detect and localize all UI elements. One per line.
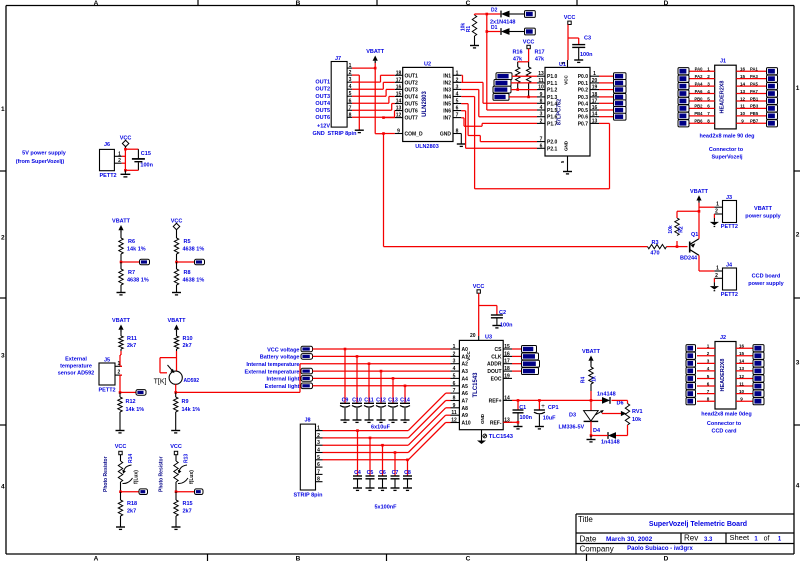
svg-text:2: 2 xyxy=(707,351,710,356)
svg-text:1: 1 xyxy=(716,266,719,272)
svg-text:3: 3 xyxy=(707,81,710,86)
svg-text:OUT3: OUT3 xyxy=(315,94,330,100)
svg-text:12: 12 xyxy=(451,418,457,424)
svg-text:470: 470 xyxy=(650,250,659,256)
svg-text:3: 3 xyxy=(1,352,5,359)
svg-text:PA1: PA1 xyxy=(750,67,759,72)
svg-text:2: 2 xyxy=(1,234,5,241)
svg-text:C3: C3 xyxy=(584,36,591,42)
svg-text:7: 7 xyxy=(317,469,320,475)
svg-text:B: B xyxy=(296,556,301,561)
svg-text:f(Lux): f(Lux) xyxy=(189,470,195,484)
svg-text:R7: R7 xyxy=(128,270,135,276)
svg-text:TLC1543: TLC1543 xyxy=(489,434,514,440)
svg-text:100n: 100n xyxy=(500,323,513,329)
svg-text:1: 1 xyxy=(349,63,352,69)
svg-text:A5: A5 xyxy=(462,384,469,390)
svg-text:1: 1 xyxy=(593,71,596,77)
svg-text:6: 6 xyxy=(349,98,352,104)
svg-text:5: 5 xyxy=(453,373,456,379)
svg-text:OUT2: OUT2 xyxy=(405,80,419,86)
svg-text:12: 12 xyxy=(740,96,746,101)
svg-text:3: 3 xyxy=(317,440,320,446)
svg-text:C11: C11 xyxy=(364,397,373,403)
svg-text:A7: A7 xyxy=(462,399,469,405)
svg-text:4: 4 xyxy=(707,89,710,94)
svg-text:8: 8 xyxy=(707,396,710,401)
svg-text:External light: External light xyxy=(265,384,300,390)
svg-text:11: 11 xyxy=(740,104,745,109)
svg-text:A1: A1 xyxy=(462,354,469,360)
svg-text:10k: 10k xyxy=(668,225,674,234)
svg-text:8: 8 xyxy=(453,396,456,402)
svg-text:4: 4 xyxy=(1,483,5,490)
svg-text:2: 2 xyxy=(540,118,543,124)
svg-text:head2x8 male 90 deg: head2x8 male 90 deg xyxy=(699,134,754,140)
svg-text:March 30, 2002: March 30, 2002 xyxy=(606,536,653,543)
svg-text:A3: A3 xyxy=(462,369,469,375)
svg-text:5: 5 xyxy=(707,374,710,379)
svg-text:4: 4 xyxy=(349,84,352,90)
svg-text:J8: J8 xyxy=(304,418,310,424)
svg-text:A4: A4 xyxy=(462,376,469,382)
svg-text:18: 18 xyxy=(396,70,402,76)
svg-text:1k: 1k xyxy=(592,376,598,382)
svg-text:14k 1%: 14k 1% xyxy=(127,247,146,253)
svg-text:5: 5 xyxy=(707,96,710,101)
svg-text:J2: J2 xyxy=(720,335,726,341)
svg-text:6: 6 xyxy=(453,381,456,387)
svg-text:PA3: PA3 xyxy=(750,74,759,79)
svg-text:5x100nF: 5x100nF xyxy=(374,505,397,511)
svg-text:D4: D4 xyxy=(593,428,601,434)
svg-text:A6: A6 xyxy=(462,391,469,397)
svg-text:VBATT: VBATT xyxy=(112,318,131,324)
svg-text:20: 20 xyxy=(592,78,598,84)
svg-text:D: D xyxy=(664,0,669,7)
svg-text:6: 6 xyxy=(707,104,710,109)
svg-text:(from SuperVozelj): (from SuperVozelj) xyxy=(16,159,65,165)
svg-text:16: 16 xyxy=(739,344,745,349)
svg-text:4638 1%: 4638 1% xyxy=(183,247,205,253)
svg-text:VCC: VCC xyxy=(564,75,569,85)
svg-text:P0.7: P0.7 xyxy=(578,121,589,127)
svg-text:PETT2: PETT2 xyxy=(721,292,738,298)
svg-text:P1.0: P1.0 xyxy=(547,74,558,80)
svg-text:J3: J3 xyxy=(726,195,732,201)
svg-text:2: 2 xyxy=(715,273,718,279)
svg-text:Photo Resistor: Photo Resistor xyxy=(159,456,165,492)
svg-text:P1.6: P1.6 xyxy=(547,115,558,121)
svg-text:2: 2 xyxy=(707,74,710,79)
svg-text:87LPC762: 87LPC762 xyxy=(557,99,563,125)
svg-text:sensor AD592: sensor AD592 xyxy=(58,371,94,377)
svg-text:J1: J1 xyxy=(720,59,726,65)
svg-text:CLK: CLK xyxy=(491,354,502,360)
svg-text:14: 14 xyxy=(592,112,598,118)
svg-text:5: 5 xyxy=(317,455,320,461)
svg-text:15: 15 xyxy=(396,91,402,97)
svg-text:100n: 100n xyxy=(580,52,593,58)
svg-text:PETT2: PETT2 xyxy=(100,173,117,179)
svg-text:SuperVozelj: SuperVozelj xyxy=(711,155,743,161)
svg-text:5: 5 xyxy=(349,91,352,97)
svg-text:1: 1 xyxy=(716,202,719,208)
svg-text:A10: A10 xyxy=(462,421,471,427)
svg-text:VCC: VCC xyxy=(473,284,485,290)
svg-text:9: 9 xyxy=(397,129,400,135)
svg-text:11: 11 xyxy=(451,410,457,416)
svg-text:9: 9 xyxy=(740,396,743,401)
svg-text:IN7: IN7 xyxy=(443,116,451,122)
svg-text:CCD card: CCD card xyxy=(711,429,736,435)
svg-text:SuperVozelj Telemetric Board: SuperVozelj Telemetric Board xyxy=(649,521,747,528)
svg-text:4: 4 xyxy=(707,366,710,371)
svg-text:P0.2: P0.2 xyxy=(578,88,589,94)
svg-text:DOUT: DOUT xyxy=(487,369,501,375)
svg-text:15: 15 xyxy=(739,351,745,356)
svg-text:3: 3 xyxy=(453,359,456,365)
svg-text:A0: A0 xyxy=(462,347,469,353)
svg-text:8: 8 xyxy=(349,112,352,118)
svg-text:9: 9 xyxy=(453,403,456,409)
svg-text:R12: R12 xyxy=(126,399,136,405)
svg-text:Connector to: Connector to xyxy=(707,421,742,427)
svg-text:10: 10 xyxy=(740,111,746,116)
svg-text:R11: R11 xyxy=(127,336,137,342)
svg-text:VCC: VCC xyxy=(115,444,127,450)
svg-text:A: A xyxy=(94,0,99,7)
svg-text:6: 6 xyxy=(707,381,710,386)
svg-text:6: 6 xyxy=(456,106,459,112)
svg-text:Internal light: Internal light xyxy=(267,377,300,383)
svg-text:OUT2: OUT2 xyxy=(315,87,330,93)
svg-text:C8: C8 xyxy=(404,470,411,476)
svg-text:1: 1 xyxy=(453,344,456,350)
svg-text:Title: Title xyxy=(578,515,593,524)
svg-text:PA0: PA0 xyxy=(695,67,704,72)
svg-text:2: 2 xyxy=(796,231,800,238)
svg-text:15: 15 xyxy=(740,74,746,79)
svg-text:OUT5: OUT5 xyxy=(315,108,330,114)
svg-text:+: + xyxy=(541,403,545,410)
svg-text:PB0: PB0 xyxy=(694,96,703,101)
svg-text:A9: A9 xyxy=(462,413,469,419)
svg-text:STRIP 8pin: STRIP 8pin xyxy=(294,493,324,499)
svg-text:GND: GND xyxy=(313,131,325,137)
svg-text:5V power supply: 5V power supply xyxy=(22,151,67,157)
svg-text:R18: R18 xyxy=(127,501,137,507)
svg-text:C5: C5 xyxy=(367,470,374,476)
svg-text:IN2: IN2 xyxy=(443,80,451,86)
svg-text:6: 6 xyxy=(317,462,320,468)
svg-text:14: 14 xyxy=(740,81,746,86)
svg-text:R2: R2 xyxy=(679,226,685,233)
svg-text:J6: J6 xyxy=(104,142,110,148)
svg-text:Company: Company xyxy=(580,545,614,554)
svg-text:OUT5: OUT5 xyxy=(405,102,419,108)
svg-text:P0.3: P0.3 xyxy=(578,95,589,101)
svg-text:7: 7 xyxy=(707,111,710,116)
svg-text:IN3: IN3 xyxy=(443,87,451,93)
svg-text:4: 4 xyxy=(540,105,543,111)
svg-text:9: 9 xyxy=(741,119,744,124)
svg-text:18: 18 xyxy=(504,366,510,372)
svg-text:7: 7 xyxy=(456,113,459,119)
svg-text:3.3: 3.3 xyxy=(704,537,713,543)
svg-text:R3: R3 xyxy=(651,240,658,246)
svg-text:C13: C13 xyxy=(388,397,398,403)
svg-text:R5: R5 xyxy=(184,239,191,245)
svg-text:R13: R13 xyxy=(184,454,190,463)
svg-text:PA7: PA7 xyxy=(750,89,759,94)
svg-text:OUT1: OUT1 xyxy=(405,73,419,79)
svg-text:ULN2803: ULN2803 xyxy=(422,91,428,117)
svg-text:7: 7 xyxy=(453,388,456,394)
svg-text:Date: Date xyxy=(580,535,597,544)
svg-text:OUT3: OUT3 xyxy=(405,87,419,93)
svg-text:2k7: 2k7 xyxy=(183,509,192,515)
svg-text:VCC: VCC xyxy=(170,444,182,450)
svg-text:R10: R10 xyxy=(183,336,193,342)
svg-text:3: 3 xyxy=(456,84,459,90)
svg-text:PA6: PA6 xyxy=(695,89,704,94)
svg-text:R1: R1 xyxy=(466,26,472,33)
svg-text:P0.1: P0.1 xyxy=(578,81,589,87)
svg-text:P2.1: P2.1 xyxy=(547,146,558,152)
svg-text:7: 7 xyxy=(349,105,352,111)
svg-text:8: 8 xyxy=(707,119,710,124)
svg-text:1: 1 xyxy=(707,67,710,72)
svg-text:16: 16 xyxy=(592,105,598,111)
svg-text:C2: C2 xyxy=(499,310,506,316)
svg-text:IN6: IN6 xyxy=(443,109,451,115)
svg-text:14k 1%: 14k 1% xyxy=(126,407,145,413)
svg-text:47k: 47k xyxy=(513,57,523,63)
svg-text:Paolo Subiaco - iw3grx: Paolo Subiaco - iw3grx xyxy=(627,546,693,552)
svg-text:7: 7 xyxy=(540,137,543,143)
svg-text:C4: C4 xyxy=(354,470,361,476)
svg-text:P1.4: P1.4 xyxy=(547,101,558,107)
svg-text:13: 13 xyxy=(396,106,402,112)
svg-text:AD592: AD592 xyxy=(184,378,200,384)
svg-text:OUT4: OUT4 xyxy=(405,94,419,100)
svg-text:9: 9 xyxy=(540,92,543,98)
svg-text:14: 14 xyxy=(504,395,510,401)
svg-text:19: 19 xyxy=(592,85,598,91)
svg-text:Connector to: Connector to xyxy=(709,147,744,153)
svg-text:U3: U3 xyxy=(485,335,492,341)
svg-text:C12: C12 xyxy=(376,397,386,403)
svg-text:R15: R15 xyxy=(183,501,193,507)
svg-text:20: 20 xyxy=(470,333,476,339)
svg-text:VBATT: VBATT xyxy=(754,206,773,212)
svg-text:ULN2803: ULN2803 xyxy=(415,144,439,150)
svg-text:PB6: PB6 xyxy=(694,119,703,124)
svg-text:J4: J4 xyxy=(726,263,733,269)
svg-text:13: 13 xyxy=(740,89,746,94)
svg-text:D6: D6 xyxy=(617,401,624,407)
svg-text:C9: C9 xyxy=(342,397,349,403)
svg-text:A2: A2 xyxy=(462,362,469,368)
svg-text:P0.0: P0.0 xyxy=(578,74,589,80)
svg-text:VBATT: VBATT xyxy=(366,49,385,55)
svg-text:PB5: PB5 xyxy=(750,111,759,116)
svg-text:CP1: CP1 xyxy=(548,405,559,411)
svg-text:8: 8 xyxy=(540,98,543,104)
svg-text:14k 1%: 14k 1% xyxy=(182,407,201,413)
svg-text:1: 1 xyxy=(317,426,320,432)
svg-text:COM_D: COM_D xyxy=(405,132,423,138)
svg-text:PA5: PA5 xyxy=(750,81,759,86)
svg-text:C14: C14 xyxy=(400,397,410,403)
svg-text:PB7: PB7 xyxy=(750,119,759,124)
svg-text:2: 2 xyxy=(317,433,320,439)
svg-text:14: 14 xyxy=(739,359,745,364)
svg-text:VBATT: VBATT xyxy=(690,189,709,195)
svg-text:1n4148: 1n4148 xyxy=(601,440,620,446)
svg-text:4638 1%: 4638 1% xyxy=(127,278,149,284)
svg-text:16: 16 xyxy=(396,84,402,90)
svg-text:REF-: REF- xyxy=(490,420,502,426)
svg-text:3: 3 xyxy=(540,112,543,118)
svg-text:C: C xyxy=(466,0,471,7)
svg-text:3: 3 xyxy=(707,359,710,364)
svg-text:C10: C10 xyxy=(352,397,362,403)
svg-text:power supply: power supply xyxy=(745,214,781,220)
svg-text:10: 10 xyxy=(739,389,745,394)
svg-text:16: 16 xyxy=(740,67,746,72)
svg-text:VBATT: VBATT xyxy=(112,219,131,225)
svg-text:ADDR: ADDR xyxy=(487,362,502,368)
svg-text:2: 2 xyxy=(715,209,718,215)
svg-text:18: 18 xyxy=(592,92,598,98)
svg-text:1: 1 xyxy=(1,106,5,113)
svg-text:R6: R6 xyxy=(128,239,135,245)
svg-text:2: 2 xyxy=(453,351,456,357)
svg-text:1: 1 xyxy=(118,151,121,157)
svg-text:1: 1 xyxy=(796,85,800,92)
svg-text:EOC: EOC xyxy=(491,376,502,382)
svg-text:2: 2 xyxy=(118,158,121,164)
svg-text:1: 1 xyxy=(707,344,710,349)
svg-text:P1.5: P1.5 xyxy=(547,108,558,114)
svg-text:R14: R14 xyxy=(128,454,134,463)
svg-text:2: 2 xyxy=(349,70,352,76)
svg-text:PETT2: PETT2 xyxy=(721,224,738,230)
svg-text:R17: R17 xyxy=(534,50,544,56)
svg-text:OUT6: OUT6 xyxy=(405,109,419,115)
svg-text:GND: GND xyxy=(564,140,569,151)
svg-text:VCC voltage: VCC voltage xyxy=(267,347,299,353)
svg-text:PA4: PA4 xyxy=(695,81,704,86)
svg-text:P0.5: P0.5 xyxy=(578,108,589,114)
svg-text:R8: R8 xyxy=(184,270,191,276)
svg-text:GND: GND xyxy=(480,413,485,424)
svg-text:47k: 47k xyxy=(535,57,545,63)
svg-text:GND: GND xyxy=(440,132,452,138)
svg-text:OUT4: OUT4 xyxy=(315,101,331,107)
svg-text:External temperature: External temperature xyxy=(244,369,299,375)
svg-text:OUT1: OUT1 xyxy=(315,80,330,86)
svg-text:PA2: PA2 xyxy=(695,74,704,79)
svg-text:P0.6: P0.6 xyxy=(578,115,589,121)
svg-text:6: 6 xyxy=(540,143,543,149)
svg-text:7: 7 xyxy=(707,389,710,394)
svg-text:1n4148: 1n4148 xyxy=(597,392,616,398)
svg-text:D2: D2 xyxy=(491,8,498,14)
svg-text:4: 4 xyxy=(456,91,459,97)
svg-text:VCC: VCC xyxy=(564,15,576,21)
svg-text:BD244: BD244 xyxy=(680,256,698,262)
svg-text:8: 8 xyxy=(456,129,459,135)
svg-text:U2: U2 xyxy=(424,62,431,68)
svg-text:HEADER2X8: HEADER2X8 xyxy=(720,358,726,391)
svg-text:P1.2: P1.2 xyxy=(547,88,558,94)
svg-text:VCC: VCC xyxy=(523,40,535,46)
svg-text:P1.3: P1.3 xyxy=(547,95,558,101)
svg-text:15: 15 xyxy=(504,344,510,350)
svg-text:J7: J7 xyxy=(335,56,341,62)
svg-text:4: 4 xyxy=(453,366,456,372)
svg-text:2k7: 2k7 xyxy=(127,343,136,349)
svg-text:R4: R4 xyxy=(581,377,587,384)
svg-text:6x10uF: 6x10uF xyxy=(371,425,391,431)
svg-text:Photo Resistor: Photo Resistor xyxy=(103,456,109,492)
svg-text:J5: J5 xyxy=(104,358,110,364)
svg-text:14: 14 xyxy=(396,99,402,105)
svg-text:C1: C1 xyxy=(519,405,526,411)
svg-text:D: D xyxy=(664,556,669,561)
svg-text:13: 13 xyxy=(739,366,745,371)
svg-text:OUT6: OUT6 xyxy=(315,115,330,121)
svg-text:IN1: IN1 xyxy=(443,73,451,79)
svg-text:LM336-5V: LM336-5V xyxy=(559,425,585,431)
svg-text:12: 12 xyxy=(396,113,402,119)
svg-text:19: 19 xyxy=(504,373,510,379)
svg-text:REF+: REF+ xyxy=(489,398,502,404)
svg-text:17: 17 xyxy=(592,98,598,104)
svg-text:IN4: IN4 xyxy=(443,94,451,100)
svg-text:B: B xyxy=(296,0,301,7)
svg-text:8: 8 xyxy=(317,477,320,483)
svg-text:T[K]: T[K] xyxy=(154,379,167,386)
svg-text:D1: D1 xyxy=(491,25,498,31)
svg-text:4: 4 xyxy=(317,448,320,454)
svg-text:temperature: temperature xyxy=(60,364,92,370)
svg-text:C6: C6 xyxy=(379,470,386,476)
svg-text:head2x8 male 0deg: head2x8 male 0deg xyxy=(701,412,751,418)
svg-text:C7: C7 xyxy=(392,470,399,476)
svg-text:PB4: PB4 xyxy=(694,111,703,116)
svg-text:1: 1 xyxy=(456,70,459,76)
svg-text:P2.0: P2.0 xyxy=(547,140,558,146)
svg-text:17: 17 xyxy=(504,359,510,365)
svg-text:3: 3 xyxy=(349,77,352,83)
svg-text:16: 16 xyxy=(504,351,510,357)
svg-text:4: 4 xyxy=(796,482,800,489)
svg-text:R9: R9 xyxy=(182,399,189,405)
svg-text:R16: R16 xyxy=(512,50,522,56)
svg-text:A8: A8 xyxy=(462,406,469,412)
svg-text:P0.4: P0.4 xyxy=(578,101,589,107)
svg-text:13: 13 xyxy=(592,118,598,124)
svg-text:CS: CS xyxy=(495,347,503,353)
svg-text:3: 3 xyxy=(796,359,800,366)
svg-text:10: 10 xyxy=(538,85,544,91)
svg-text:D3: D3 xyxy=(569,413,576,419)
svg-text:PB2: PB2 xyxy=(694,104,703,109)
